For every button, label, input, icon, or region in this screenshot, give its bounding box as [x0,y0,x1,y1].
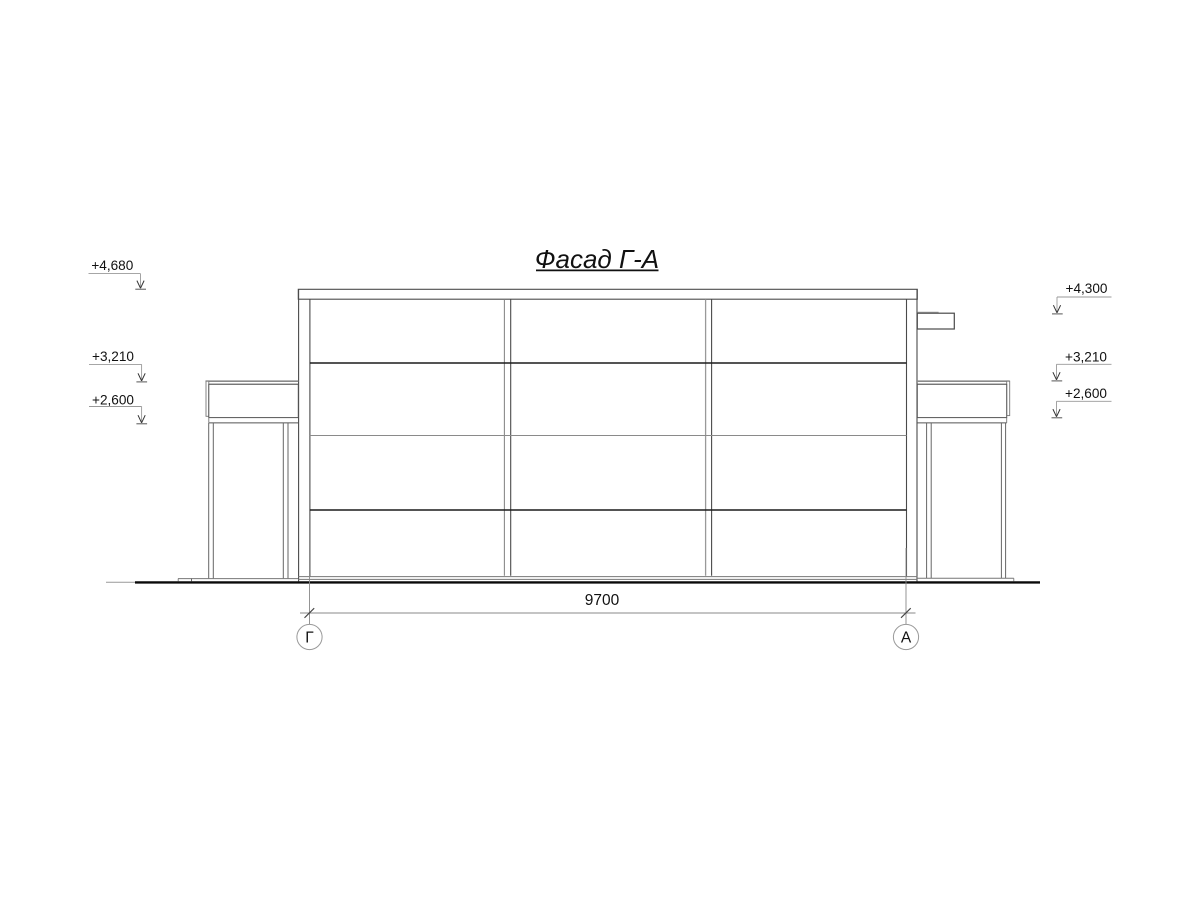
svg-text:+2,600: +2,600 [1065,386,1107,401]
svg-text:+4,300: +4,300 [1066,281,1108,296]
svg-text:9700: 9700 [585,592,620,609]
svg-text:Г: Г [305,630,314,647]
svg-text:А: А [901,630,912,647]
svg-text:+2,600: +2,600 [92,393,134,408]
svg-text:+3,210: +3,210 [1065,349,1107,364]
svg-text:+4,680: +4,680 [91,258,133,273]
svg-text:Фасад Г-А: Фасад Г-А [535,244,659,274]
svg-text:+3,210: +3,210 [92,349,134,364]
